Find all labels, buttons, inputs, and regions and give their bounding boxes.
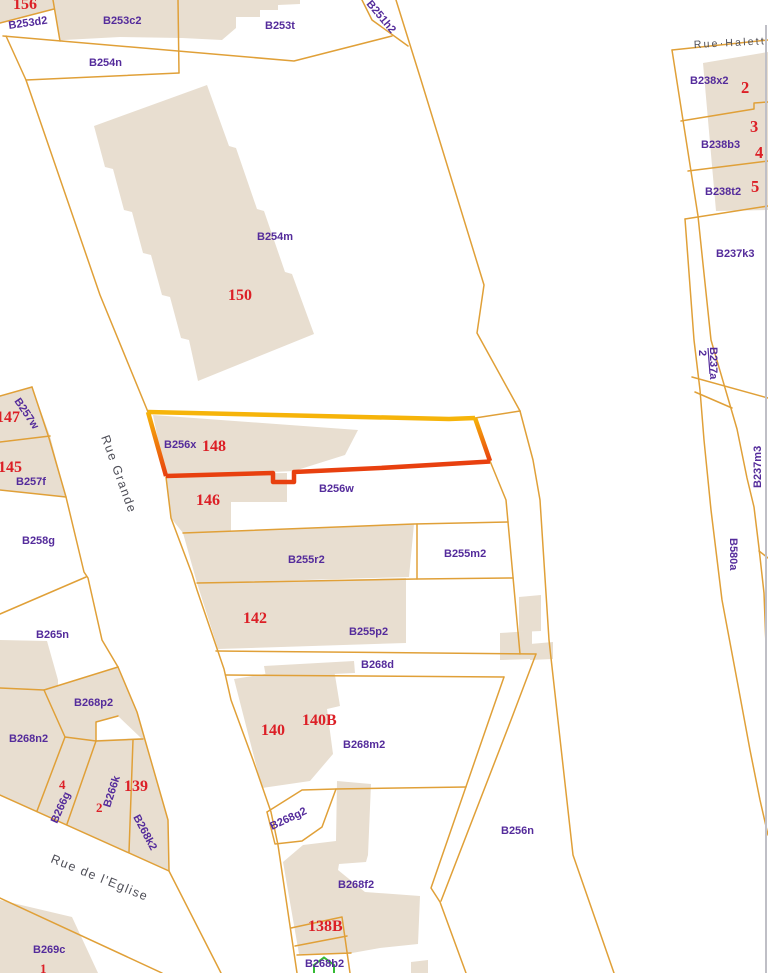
svg-text:B254m: B254m xyxy=(257,231,293,243)
svg-text:B268f2: B268f2 xyxy=(338,879,374,891)
svg-text:B265n: B265n xyxy=(36,629,69,641)
svg-text:B258g: B258g xyxy=(22,535,55,547)
svg-text:139: 139 xyxy=(124,778,148,795)
svg-text:B268d: B268d xyxy=(361,659,394,671)
svg-text:140B: 140B xyxy=(302,712,337,729)
svg-text:2: 2 xyxy=(741,78,749,97)
svg-text:146: 146 xyxy=(196,492,220,509)
svg-text:138B: 138B xyxy=(308,918,343,935)
svg-text:142: 142 xyxy=(243,610,267,627)
svg-text:150: 150 xyxy=(228,287,252,304)
svg-text:148: 148 xyxy=(202,438,226,455)
svg-text:B253c2: B253c2 xyxy=(103,15,142,27)
svg-text:145: 145 xyxy=(0,459,22,476)
svg-text:4: 4 xyxy=(59,777,66,792)
svg-text:B268n2: B268n2 xyxy=(9,733,48,745)
svg-text:B257f: B257f xyxy=(16,476,46,488)
svg-text:B253t: B253t xyxy=(265,20,295,32)
svg-text:B255m2: B255m2 xyxy=(444,548,486,560)
svg-text:5: 5 xyxy=(751,177,759,196)
svg-text:147: 147 xyxy=(0,409,20,426)
svg-text:B268b2: B268b2 xyxy=(305,958,344,970)
svg-text:3: 3 xyxy=(750,117,758,136)
svg-text:B256x: B256x xyxy=(164,439,197,451)
svg-text:B254n: B254n xyxy=(89,57,122,69)
svg-text:B256w: B256w xyxy=(319,483,354,495)
svg-text:B255p2: B255p2 xyxy=(349,626,388,638)
svg-text:B237k3: B237k3 xyxy=(716,248,755,260)
svg-text:140: 140 xyxy=(261,722,285,739)
svg-text:156: 156 xyxy=(13,0,37,13)
svg-text:B255r2: B255r2 xyxy=(288,554,325,566)
svg-text:B256n: B256n xyxy=(501,825,534,837)
svg-text:2: 2 xyxy=(696,350,708,356)
svg-text:4: 4 xyxy=(755,143,763,162)
svg-text:B268m2: B268m2 xyxy=(343,739,385,751)
svg-text:B238x2: B238x2 xyxy=(690,75,729,87)
svg-text:B238t2: B238t2 xyxy=(705,186,741,198)
svg-text:B237m3: B237m3 xyxy=(752,446,764,488)
svg-text:B269c: B269c xyxy=(33,944,65,956)
svg-text:B238b3: B238b3 xyxy=(701,139,740,151)
svg-text:1: 1 xyxy=(40,961,47,973)
svg-text:B268p2: B268p2 xyxy=(74,697,113,709)
svg-text:B580a: B580a xyxy=(727,538,739,571)
